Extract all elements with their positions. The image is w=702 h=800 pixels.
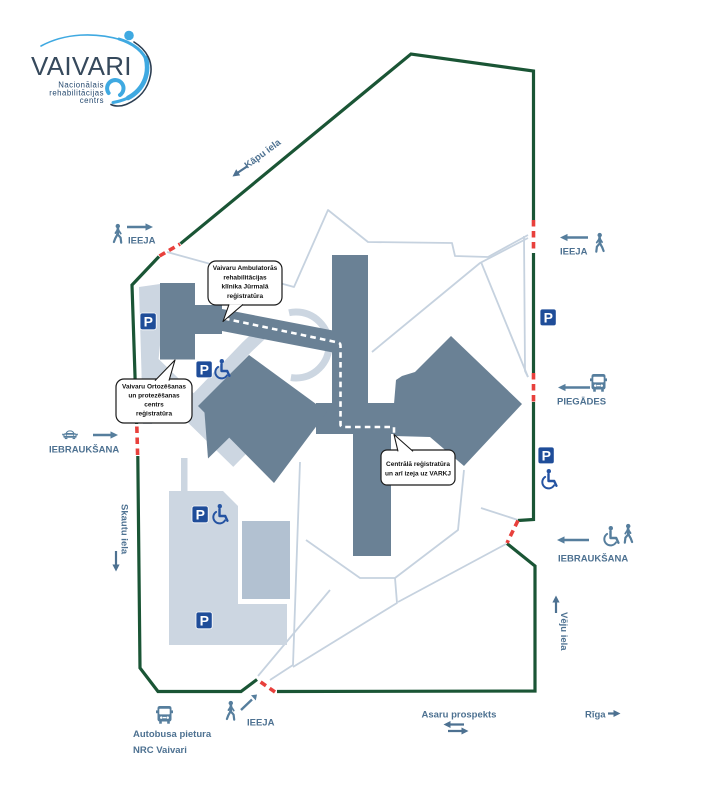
- svg-text:NRC Vaivari: NRC Vaivari: [133, 745, 187, 756]
- svg-text:centrs: centrs: [144, 402, 164, 409]
- svg-text:Skautu iela: Skautu iela: [119, 504, 130, 555]
- svg-text:rehabilitācijas: rehabilitācijas: [223, 274, 267, 281]
- svg-text:IEBRAUKŠANA: IEBRAUKŠANA: [49, 444, 119, 456]
- svg-text:Rīga: Rīga: [585, 710, 606, 721]
- svg-text:un protezēšanas: un protezēšanas: [128, 393, 180, 400]
- svg-text:Centrālā reģistratūra: Centrālā reģistratūra: [386, 460, 450, 468]
- svg-text:centrs: centrs: [80, 96, 104, 105]
- svg-text:klīnika Jūrmalā: klīnika Jūrmalā: [222, 284, 269, 291]
- svg-text:IEBRAUKŠANA: IEBRAUKŠANA: [558, 553, 628, 565]
- svg-text:IEEJA: IEEJA: [128, 236, 156, 247]
- svg-text:PIEGĀDES: PIEGĀDES: [557, 397, 606, 408]
- svg-text:reģistratūra: reģistratūra: [227, 292, 264, 300]
- svg-text:VAIVARI: VAIVARI: [31, 51, 132, 81]
- svg-text:reģistratūra: reģistratūra: [136, 410, 173, 418]
- svg-text:un arī izeja uz VARKJ: un arī izeja uz VARKJ: [385, 471, 451, 478]
- svg-text:IEEJA: IEEJA: [247, 718, 275, 729]
- svg-text:Asaru prospekts: Asaru prospekts: [422, 710, 497, 721]
- svg-text:IEEJA: IEEJA: [560, 247, 588, 258]
- svg-text:Vaivaru Ortozēšanas: Vaivaru Ortozēšanas: [122, 384, 186, 391]
- svg-text:Autobusa pietura: Autobusa pietura: [133, 729, 212, 740]
- svg-text:Vēju iela: Vēju iela: [558, 612, 569, 651]
- svg-text:Vaivaru Ambulatorās: Vaivaru Ambulatorās: [213, 265, 278, 272]
